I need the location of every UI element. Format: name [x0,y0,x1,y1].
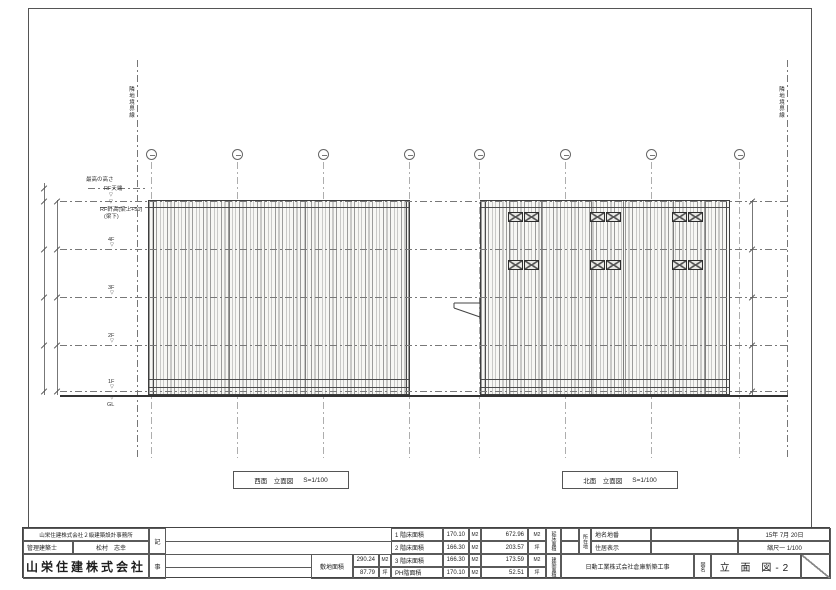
company-name: 山栄住建株式会社 [23,554,149,579]
floor-area-unit: M2 [469,567,481,580]
total-area-value: 672.96 [481,528,528,541]
grid-bubble [146,149,157,160]
grid-line [739,162,740,458]
total-area-unit: 坪 [528,541,546,554]
level-line-rf [60,201,788,202]
parapet-line [149,207,409,208]
floor-area-value: 170.10 [443,528,469,541]
address-label: 住居表示 [591,541,651,554]
level-line-2f [60,345,788,346]
window [590,260,605,270]
level-mark-icon [110,396,114,401]
architect-label: 管理建築士 [23,541,73,554]
window [590,212,605,222]
site-area-label: 敷地面積 [311,554,353,579]
window [524,260,539,270]
floor-area-value: 166.30 [443,554,469,567]
total-area-value: 203.57 [481,541,528,554]
window [508,260,523,270]
frame-right [811,8,812,527]
building-area-unit: 坪 [528,567,546,580]
floor-area-value: 170.10 [443,567,469,580]
window [606,260,621,270]
site-area-m2-unit: M2 [379,554,391,567]
grid-bubble [646,149,657,160]
note-rule [166,541,391,542]
grid-bubble [474,149,485,160]
site-area-m2: 290.24 [353,554,379,567]
blank-cell [561,541,579,554]
frame-left [28,8,29,527]
base-line [481,379,729,380]
window [672,260,687,270]
level-line-4f [60,249,788,250]
floor-area-unit: M2 [469,541,481,554]
level-label-gl: GL [107,402,114,408]
window [606,212,621,222]
notes-label-ki: 記 [149,528,166,554]
window [688,260,703,270]
blank-cell [561,528,579,541]
revision-box [801,554,831,579]
canopy [450,296,482,322]
drawing-name: 立 面 図-2 [711,554,801,579]
architect-name: 松村 志幸 [73,541,149,554]
floor-area-label: 2 階床面積 [391,541,443,554]
design-office: 山栄住建株式会社２級建築設計事務所 [23,528,149,541]
level-label-rf-top: RF天端 [104,186,122,192]
caption-scale: S=1/100 [303,477,327,484]
grid-bubble [232,149,243,160]
drawing-sheet: 隣地境界線 隣地境界線 [0,0,836,590]
caption-west-elevation: 西面 立面図 S=1/100 [233,471,349,489]
floor-area-label: 3 階床面積 [391,554,443,567]
title-block: 山栄住建株式会社２級建築設計事務所 管理建築士 松村 志幸 山栄住建株式会社 記… [22,527,830,578]
level-label-eave-sub: (梁下) [104,214,119,220]
level-label-max-height: 最高の高さ [86,177,114,183]
lot-number-label: 地名地番 [591,528,651,541]
dimension-line [44,183,45,395]
floor-area-value: 166.30 [443,541,469,554]
floor-area-label: PH階面積 [391,567,443,580]
building-area-label: 建築面積 [546,554,561,579]
level-mark-icon [109,193,113,198]
note-rule [166,567,311,568]
boundary-line-left [137,60,138,458]
address-value [651,541,738,554]
caption-scale: S=1/100 [632,477,656,484]
lot-number-value [651,528,738,541]
level-mark-icon [110,291,114,296]
floor-area-label: 1 階床面積 [391,528,443,541]
boundary-label-right: 隣地境界線 [777,86,785,119]
level-mark-icon [109,200,113,205]
site-area-tsubo: 87.79 [353,567,379,580]
grid-bubble [318,149,329,160]
level-mark-icon [110,243,114,248]
boundary-line-right [787,60,788,458]
floor-area-unit: M2 [469,554,481,567]
building-area-value: 173.59 [481,554,528,567]
base-line [149,379,409,380]
level-line-3f [60,297,788,298]
project-name: 日動工業株式会社倉庫新築工事 [561,554,694,579]
foundation-line [149,387,409,388]
window [524,212,539,222]
notes-label-ji: 事 [149,554,166,579]
grid-bubble [560,149,571,160]
caption-title: 北面 立面図 [583,475,622,485]
drawing-name-label: 図名 [694,554,711,579]
level-label-eave: RF軒高(梁上+50) [100,207,142,213]
level-line-1f [60,391,788,392]
scale: 縮尺一 1/100 [738,541,831,554]
total-floor-area-label: 延床面積 [546,528,561,554]
level-mark-icon [110,339,114,344]
window [508,212,523,222]
level-mark-icon [110,385,114,390]
caption-north-elevation: 北面 立面図 S=1/100 [562,471,678,489]
frame-top [28,8,812,9]
date: 15年 7月 20日 [738,528,831,541]
location-label: 所在地 [579,528,591,554]
ground-line [60,395,788,397]
building-area-unit: M2 [528,554,546,567]
total-area-unit: M2 [528,528,546,541]
window [688,212,703,222]
grid-bubble [404,149,415,160]
building-area-value: 52.51 [481,567,528,580]
window [672,212,687,222]
site-area-tsubo-unit: 坪 [379,567,391,580]
grid-bubble [734,149,745,160]
foundation-line [481,387,729,388]
floor-area-unit: M2 [469,528,481,541]
boundary-label-left: 隣地境界線 [127,86,135,119]
caption-title: 西面 立面図 [254,475,293,485]
parapet-line [481,207,729,208]
